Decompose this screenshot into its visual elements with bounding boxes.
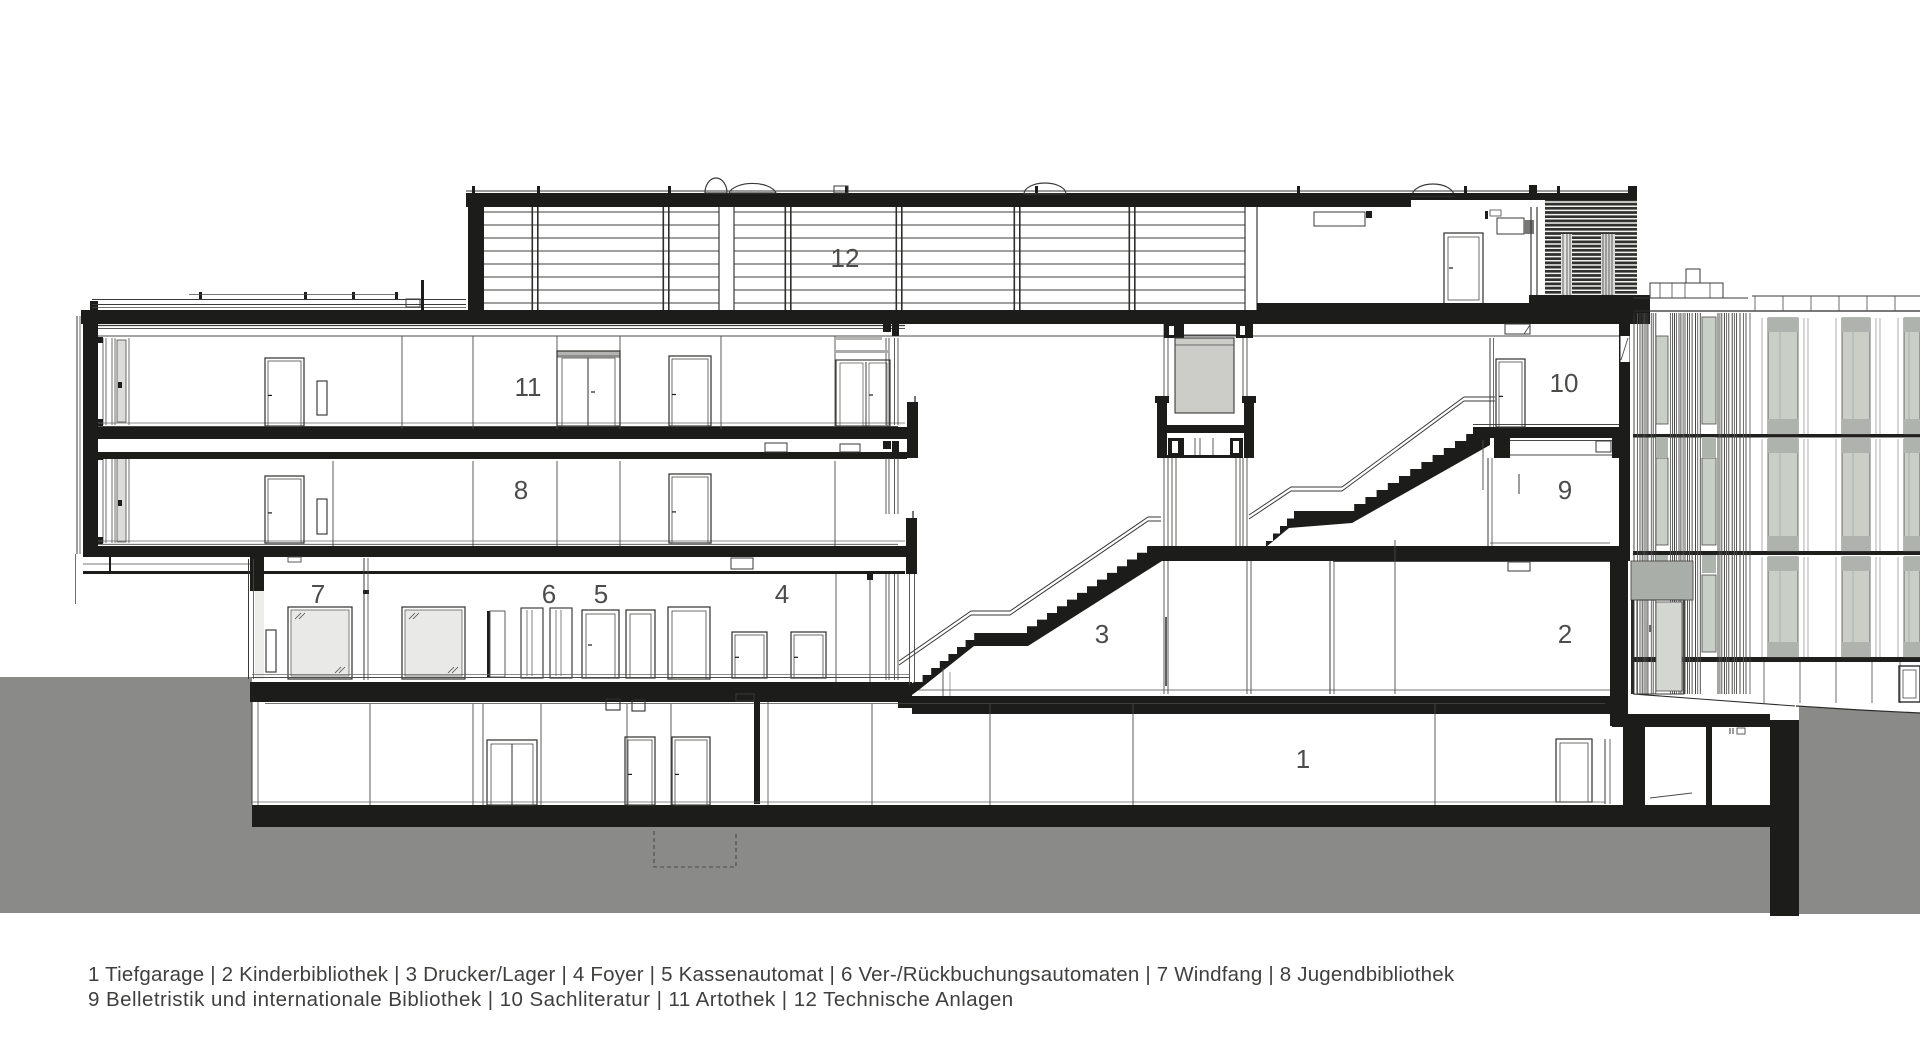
svg-text:9: 9 — [1558, 475, 1572, 505]
svg-text:1 Tiefgarage | 2 Kinderbibliot: 1 Tiefgarage | 2 Kinderbibliothek | 3 Dr… — [88, 963, 1455, 986]
svg-text:12: 12 — [831, 243, 860, 273]
svg-text:1: 1 — [1296, 744, 1310, 774]
svg-text:5: 5 — [594, 579, 608, 609]
svg-text:3: 3 — [1095, 619, 1109, 649]
svg-text:9 Belletristik und internation: 9 Belletristik und internationale Biblio… — [88, 988, 1014, 1011]
svg-text:11: 11 — [515, 372, 542, 402]
svg-text:10: 10 — [1550, 368, 1579, 398]
svg-text:6: 6 — [542, 579, 556, 609]
svg-text:4: 4 — [775, 579, 789, 609]
svg-text:8: 8 — [514, 475, 528, 505]
svg-text:2: 2 — [1558, 619, 1572, 649]
svg-text:7: 7 — [311, 579, 325, 609]
